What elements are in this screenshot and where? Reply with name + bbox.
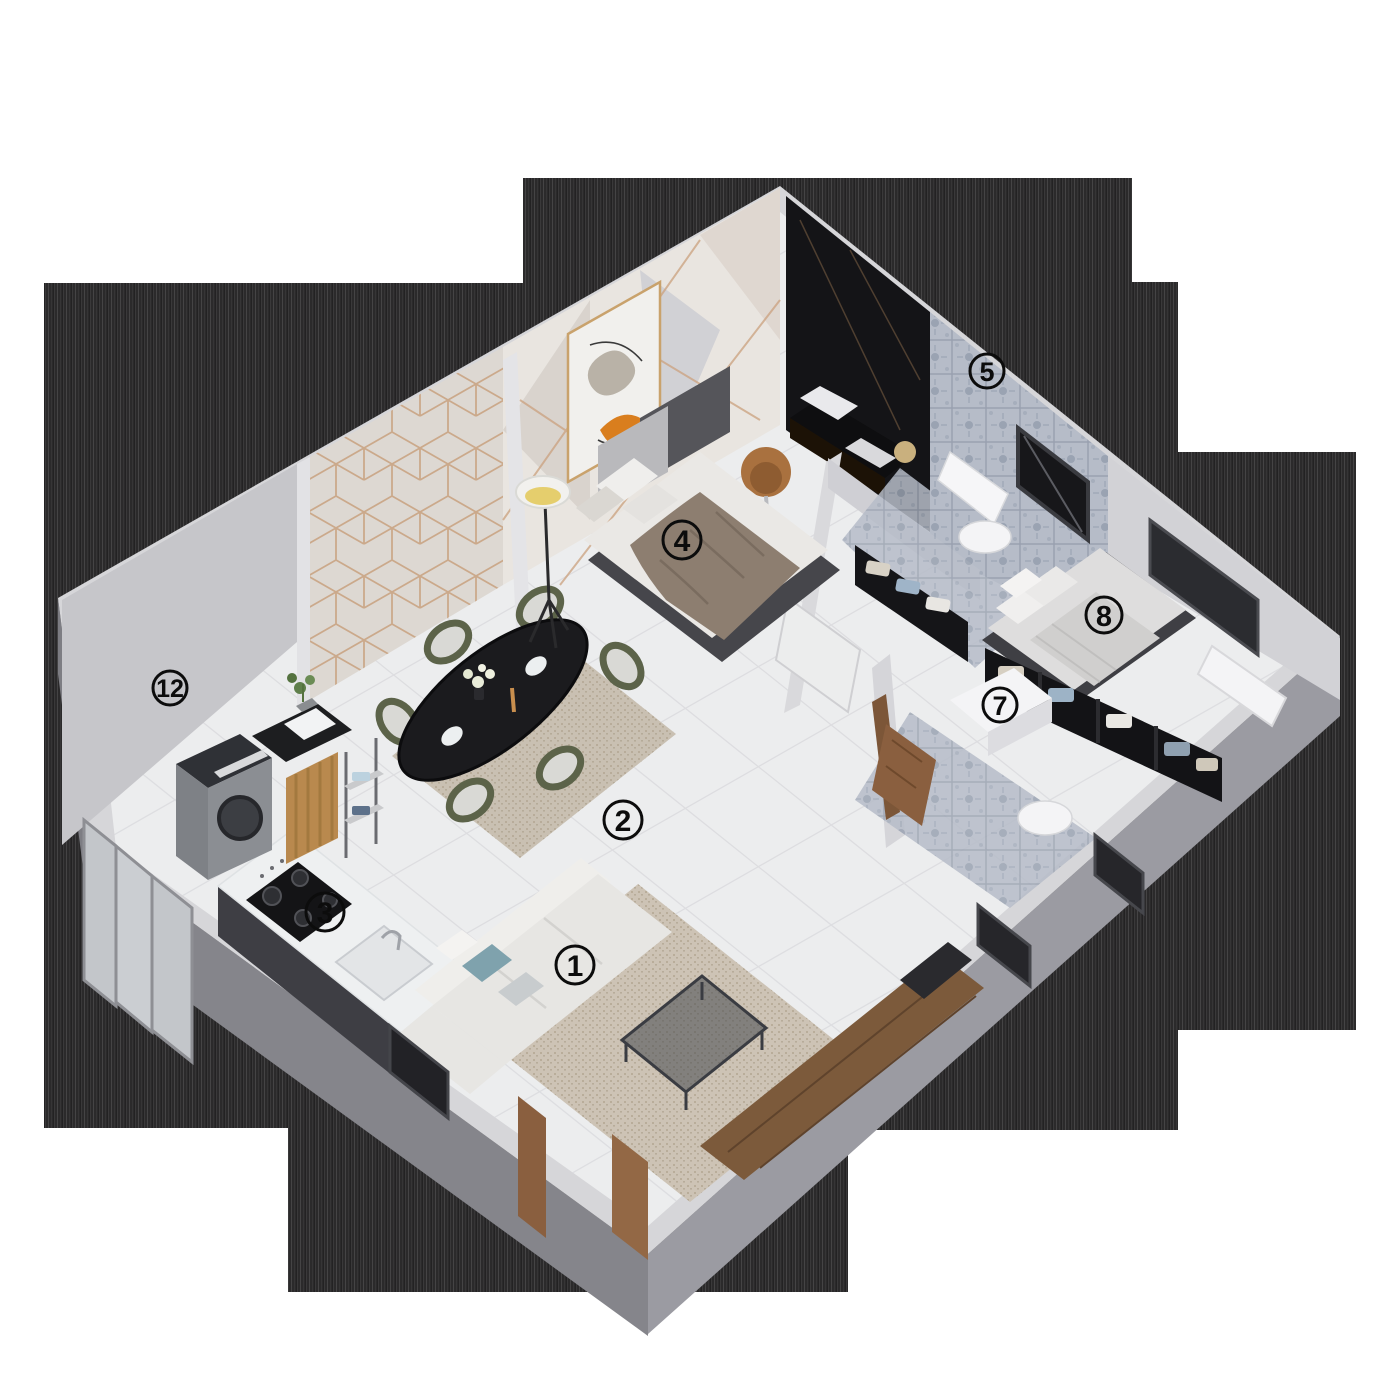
room-number-text: 8 xyxy=(1096,601,1112,633)
floor-plan-stage: 1 2 3 4 5 7 8 12 xyxy=(0,0,1400,1400)
ensuite-toilet xyxy=(1018,801,1072,835)
room-number-text: 2 xyxy=(615,805,632,838)
room-number-text: 7 xyxy=(992,691,1007,721)
room-label-utility-room: 12 xyxy=(153,671,187,705)
room-number-text: 5 xyxy=(979,357,994,387)
room-number-text: 3 xyxy=(317,897,334,930)
wall-end-cap xyxy=(297,457,310,708)
candle xyxy=(512,688,514,712)
toilet xyxy=(959,521,1011,553)
room-number-text: 1 xyxy=(567,950,584,983)
room-number-text: 4 xyxy=(674,525,691,558)
bag xyxy=(894,441,916,463)
floor-plan-scene: 1 2 3 4 5 7 8 12 xyxy=(0,0,1400,1400)
entry-door-leaf xyxy=(518,1096,546,1238)
room-number-text: 12 xyxy=(156,675,184,703)
